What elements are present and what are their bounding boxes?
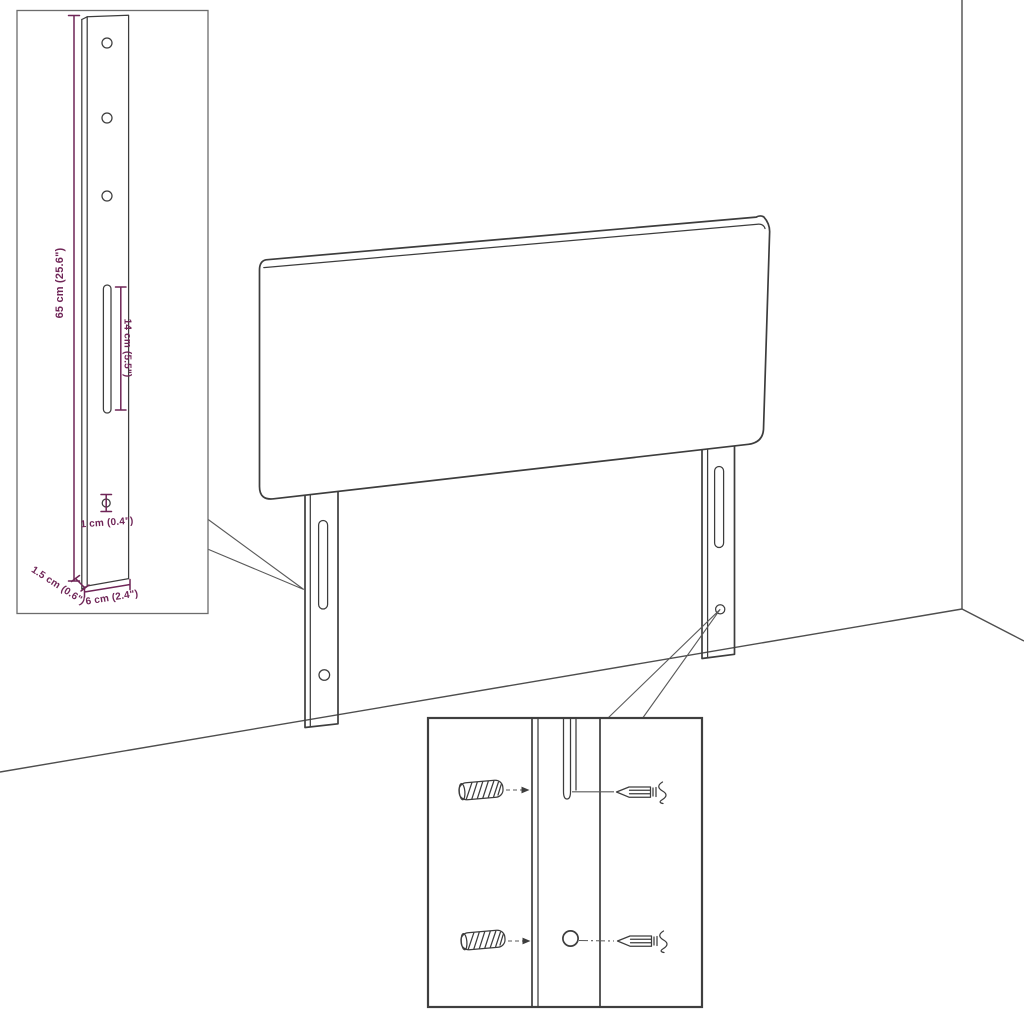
diagram-canvas: 65 cm (25.6") 14 cm (5.5") 1 cm (0.4") 1… xyxy=(0,0,1024,1024)
mounting-detail-inset xyxy=(428,718,702,1007)
callout-lines-bracket xyxy=(208,519,304,590)
hole-icon xyxy=(102,113,112,123)
leg-slot xyxy=(715,467,724,548)
dim-label-slot: 14 cm (5.5") xyxy=(122,319,133,378)
dim-label-height: 65 cm (25.6") xyxy=(54,248,66,319)
bracket-slot xyxy=(103,285,111,413)
inset-frame xyxy=(428,718,702,1007)
hole-icon xyxy=(102,38,112,48)
headboard-panel xyxy=(260,216,770,499)
floor-line-right xyxy=(962,609,1024,641)
headboard-leg-left xyxy=(305,486,338,728)
headboard-leg-right xyxy=(702,440,735,659)
screw-leader-lower xyxy=(579,941,614,942)
leg-slot xyxy=(319,521,328,610)
hole-icon xyxy=(102,191,112,201)
leg-hole xyxy=(319,670,330,681)
callout-lines-mounting xyxy=(607,609,720,719)
diagram-svg xyxy=(0,0,1024,1024)
